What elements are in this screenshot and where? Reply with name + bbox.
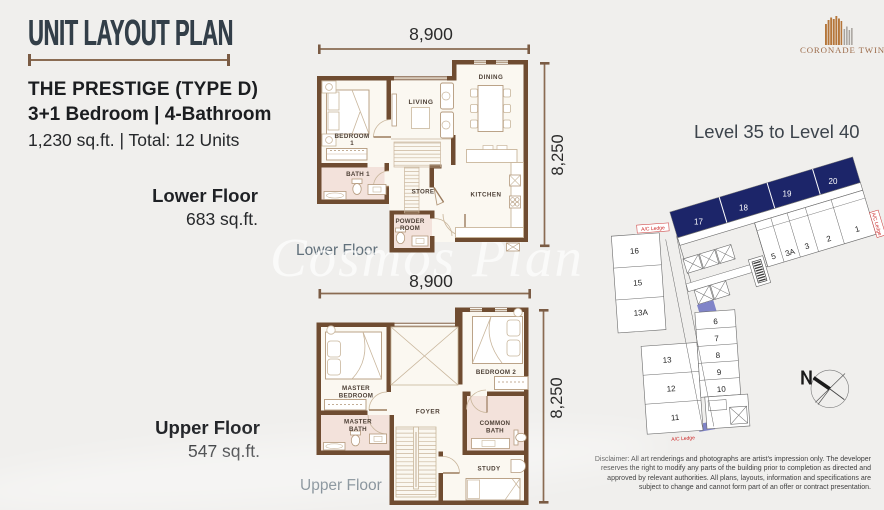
svg-text:13A: 13A	[633, 308, 648, 318]
svg-text:17: 17	[694, 218, 703, 227]
svg-text:BEDROOM: BEDROOM	[334, 133, 369, 140]
svg-text:10: 10	[717, 385, 727, 395]
svg-text:A/C Ledge: A/C Ledge	[641, 225, 665, 233]
svg-text:16: 16	[630, 246, 640, 256]
svg-text:LIVING: LIVING	[409, 99, 434, 106]
svg-text:15: 15	[633, 278, 643, 288]
svg-text:KITCHEN: KITCHEN	[471, 192, 502, 199]
svg-text:19: 19	[783, 190, 792, 199]
svg-text:BATH: BATH	[349, 426, 367, 433]
svg-text:STUDY: STUDY	[478, 466, 501, 473]
svg-text:8,900: 8,900	[409, 271, 453, 291]
svg-text:BEDROOM: BEDROOM	[339, 393, 373, 400]
svg-text:A/C Ledge: A/C Ledge	[671, 435, 695, 443]
svg-text:BEDROOM 2: BEDROOM 2	[476, 369, 516, 376]
svg-text:13: 13	[662, 355, 672, 365]
svg-text:POWDER: POWDER	[395, 218, 424, 225]
svg-text:BATH: BATH	[486, 428, 504, 435]
svg-text:11: 11	[671, 413, 680, 423]
svg-text:COMMON: COMMON	[480, 420, 511, 427]
svg-text:8,250: 8,250	[548, 377, 566, 418]
svg-text:20: 20	[829, 177, 838, 186]
svg-text:FOYER: FOYER	[416, 409, 441, 416]
svg-text:DINING: DINING	[479, 74, 504, 81]
svg-text:BATH 1: BATH 1	[346, 171, 370, 178]
svg-text:1: 1	[350, 140, 354, 147]
svg-text:8,900: 8,900	[409, 24, 453, 44]
svg-text:18: 18	[739, 204, 748, 213]
svg-text:ROOM: ROOM	[400, 225, 420, 232]
svg-text:8,250: 8,250	[549, 134, 567, 175]
svg-text:MASTER: MASTER	[344, 419, 372, 426]
svg-text:STORE: STORE	[412, 189, 435, 196]
svg-text:12: 12	[666, 384, 676, 394]
svg-text:MASTER: MASTER	[342, 385, 370, 392]
